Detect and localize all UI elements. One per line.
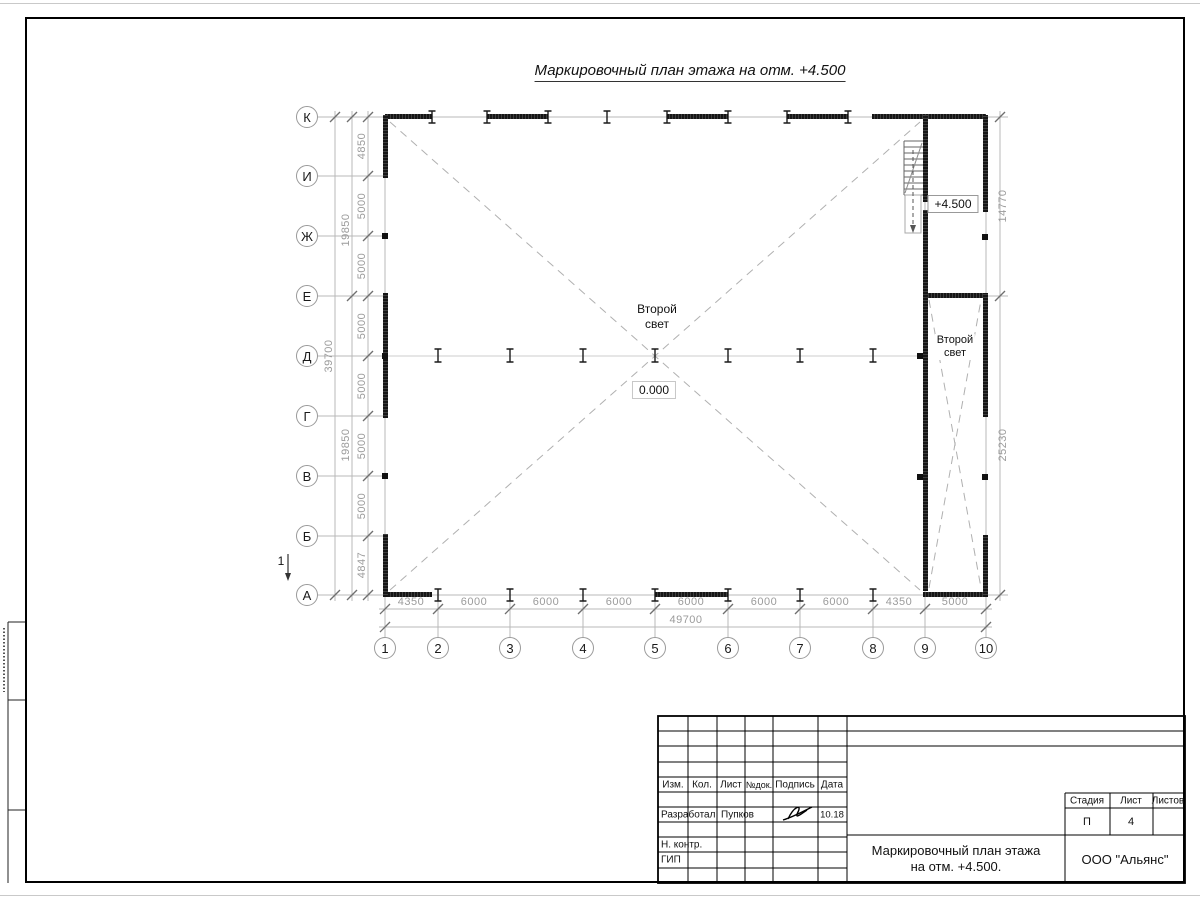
dim-label: 5000 [356,193,368,219]
axis-circle-col: 3 [499,637,521,659]
axis-circle-row: Д [296,345,318,367]
axis-circle-row: К [296,106,318,128]
drawing-title: Маркировочный план этажа на отм. +4.500 [535,62,846,82]
axis-circle-row: Г [296,405,318,427]
axis-circle-row: Е [296,285,318,307]
column-marker [917,474,923,480]
titleblock-sheet-header: Лист [1120,796,1142,807]
titleblock-developer-name: Пупков [721,810,754,821]
dim-label: 5000 [942,596,968,608]
dim-label: 5000 [356,373,368,399]
column-marker [917,353,923,359]
titleblock-doc-title: Маркировочный план этажа на отм. +4.500. [872,843,1041,875]
level-mark-zero: 0.000 [632,381,676,399]
titleblock-ncontr-label: Н. контр. [661,840,702,851]
dim-label: 5000 [356,253,368,279]
dim-label: 5000 [356,493,368,519]
wall-segment [787,114,848,119]
axis-circle-col: 9 [914,637,936,659]
dim-label: 4350 [886,596,912,608]
dim-label: 14770 [997,189,1009,222]
titleblock-col-header: Изм. [662,780,683,791]
wall-segment [872,114,986,119]
wall-segment [923,210,928,591]
second-light-note: Второй свет [635,302,679,332]
section-mark: 1 [278,554,285,568]
axis-circle-row: Б [296,525,318,547]
column-marker [982,474,988,480]
titleblock-col-header: №док. [746,780,772,790]
axis-circle-col: 5 [644,637,666,659]
column-marker [382,233,388,239]
titleblock-stage-value: П [1083,816,1091,828]
wall-segment [667,114,728,119]
axis-circle-row: И [296,165,318,187]
wall-segment [383,534,388,597]
dim-label: 6000 [461,596,487,608]
column-marker [382,353,388,359]
titleblock-developer-label: Разработал [661,810,715,821]
second-light-note: Второй свет [935,334,975,360]
wall-segment [383,115,388,178]
wall-segment [385,114,432,119]
dim-label: 6000 [751,596,777,608]
level-mark-upper: +4.500 [927,195,978,213]
dim-label: 19850 [340,213,352,246]
wall-segment [983,535,988,597]
dim-label: 6000 [606,596,632,608]
dim-label: 4847 [356,552,368,578]
axis-circle-row: В [296,465,318,487]
axis-circle-col: 6 [717,637,739,659]
dim-label: 49700 [669,614,702,626]
wall-segment [923,293,988,298]
dim-label: 4850 [356,133,368,159]
axis-circle-row: А [296,584,318,606]
drawing-linework [0,0,1200,900]
column-marker [982,234,988,240]
axis-circle-col: 10 [975,637,997,659]
axis-circle-col: 7 [789,637,811,659]
dim-label: 4350 [398,596,424,608]
titleblock-col-header: Дата [821,780,843,791]
titleblock-col-header: Лист [720,780,742,791]
titleblock-gip-label: ГИП [661,855,681,866]
wall-segment [923,115,928,202]
dim-label: 39700 [323,339,335,372]
titleblock-company: ООО "Альянс" [1082,852,1169,868]
axis-circle-col: 8 [862,637,884,659]
wall-segment [487,114,548,119]
dim-label: 6000 [678,596,704,608]
titleblock-date: 10.18 [820,810,844,821]
titleblock-sheet-value: 4 [1128,816,1134,828]
column-marker [382,473,388,479]
titleblock-sheets-header: Листов [1152,796,1185,807]
wall-segment [983,115,988,212]
axis-circle-row: Ж [296,225,318,247]
axis-circle-col: 4 [572,637,594,659]
axis-circle-col: 2 [427,637,449,659]
dim-label: 6000 [533,596,559,608]
titleblock-stage-header: Стадия [1070,796,1104,807]
dim-label: 25230 [997,428,1009,461]
titleblock-col-header: Кол. [692,780,712,791]
axis-circle-col: 1 [374,637,396,659]
wall-segment [983,293,988,417]
titleblock-col-header: Подпись [775,780,815,791]
dim-label: 19850 [340,428,352,461]
dim-label: 5000 [356,313,368,339]
dim-label: 6000 [823,596,849,608]
stairs-icon [904,141,923,233]
drawing-sheet: Маркировочный план этажа на отм. +4.500 … [0,0,1200,900]
dim-label: 5000 [356,433,368,459]
signature-icon [783,807,812,820]
